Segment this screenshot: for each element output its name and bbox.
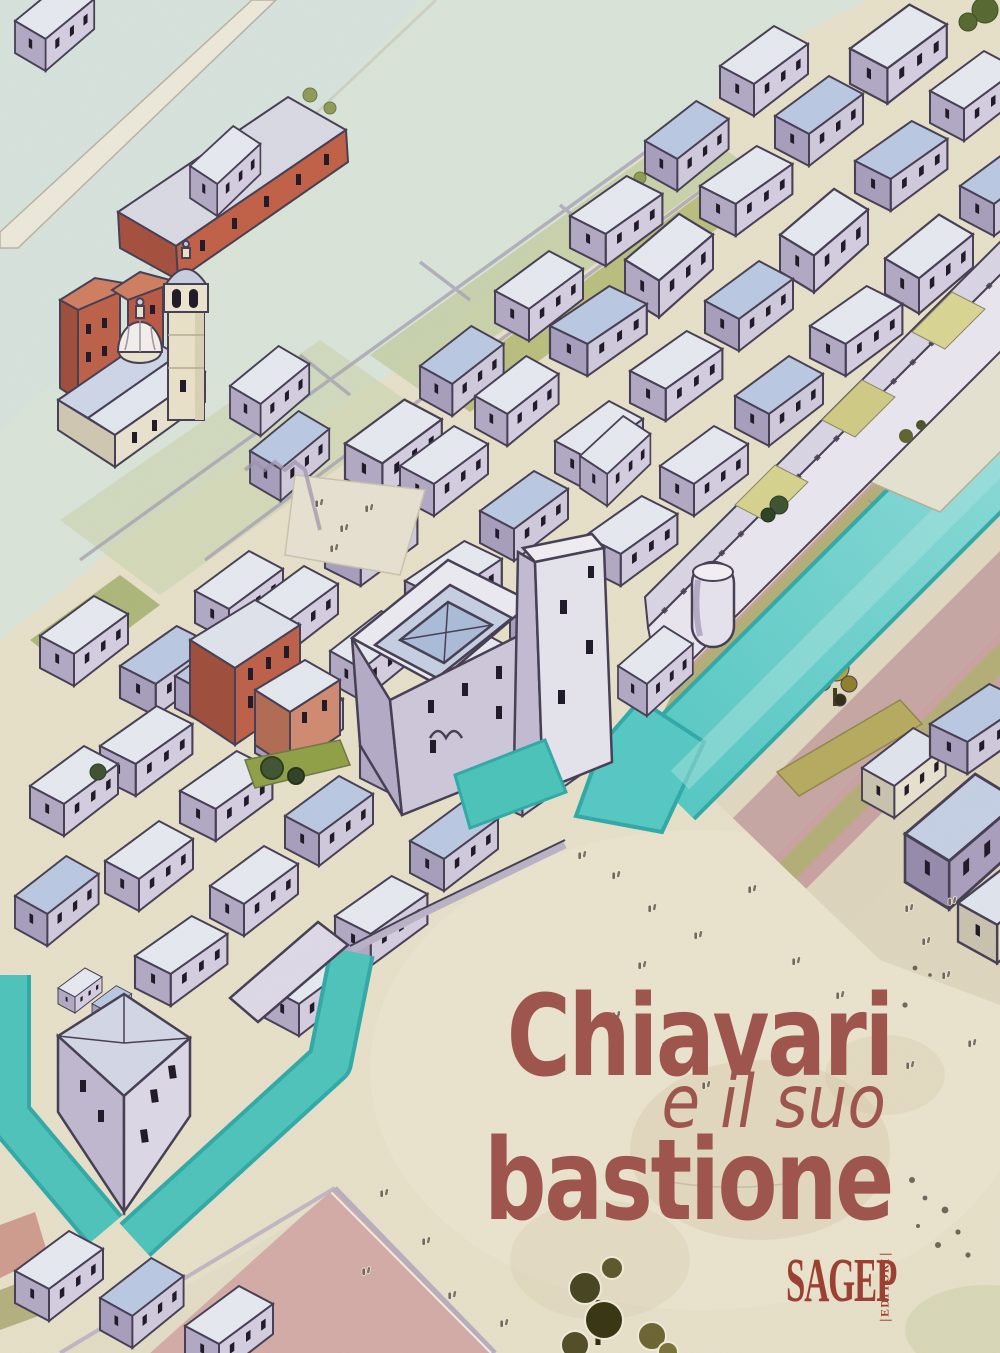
book-cover: Chiavari e il suo bastione SAGEP EDITORI — [0, 0, 1000, 1353]
publisher-division: EDITORI — [880, 1253, 892, 1320]
title-line-3: bastione — [484, 1125, 892, 1237]
publisher-logo: SAGEP EDITORI — [786, 1256, 906, 1316]
